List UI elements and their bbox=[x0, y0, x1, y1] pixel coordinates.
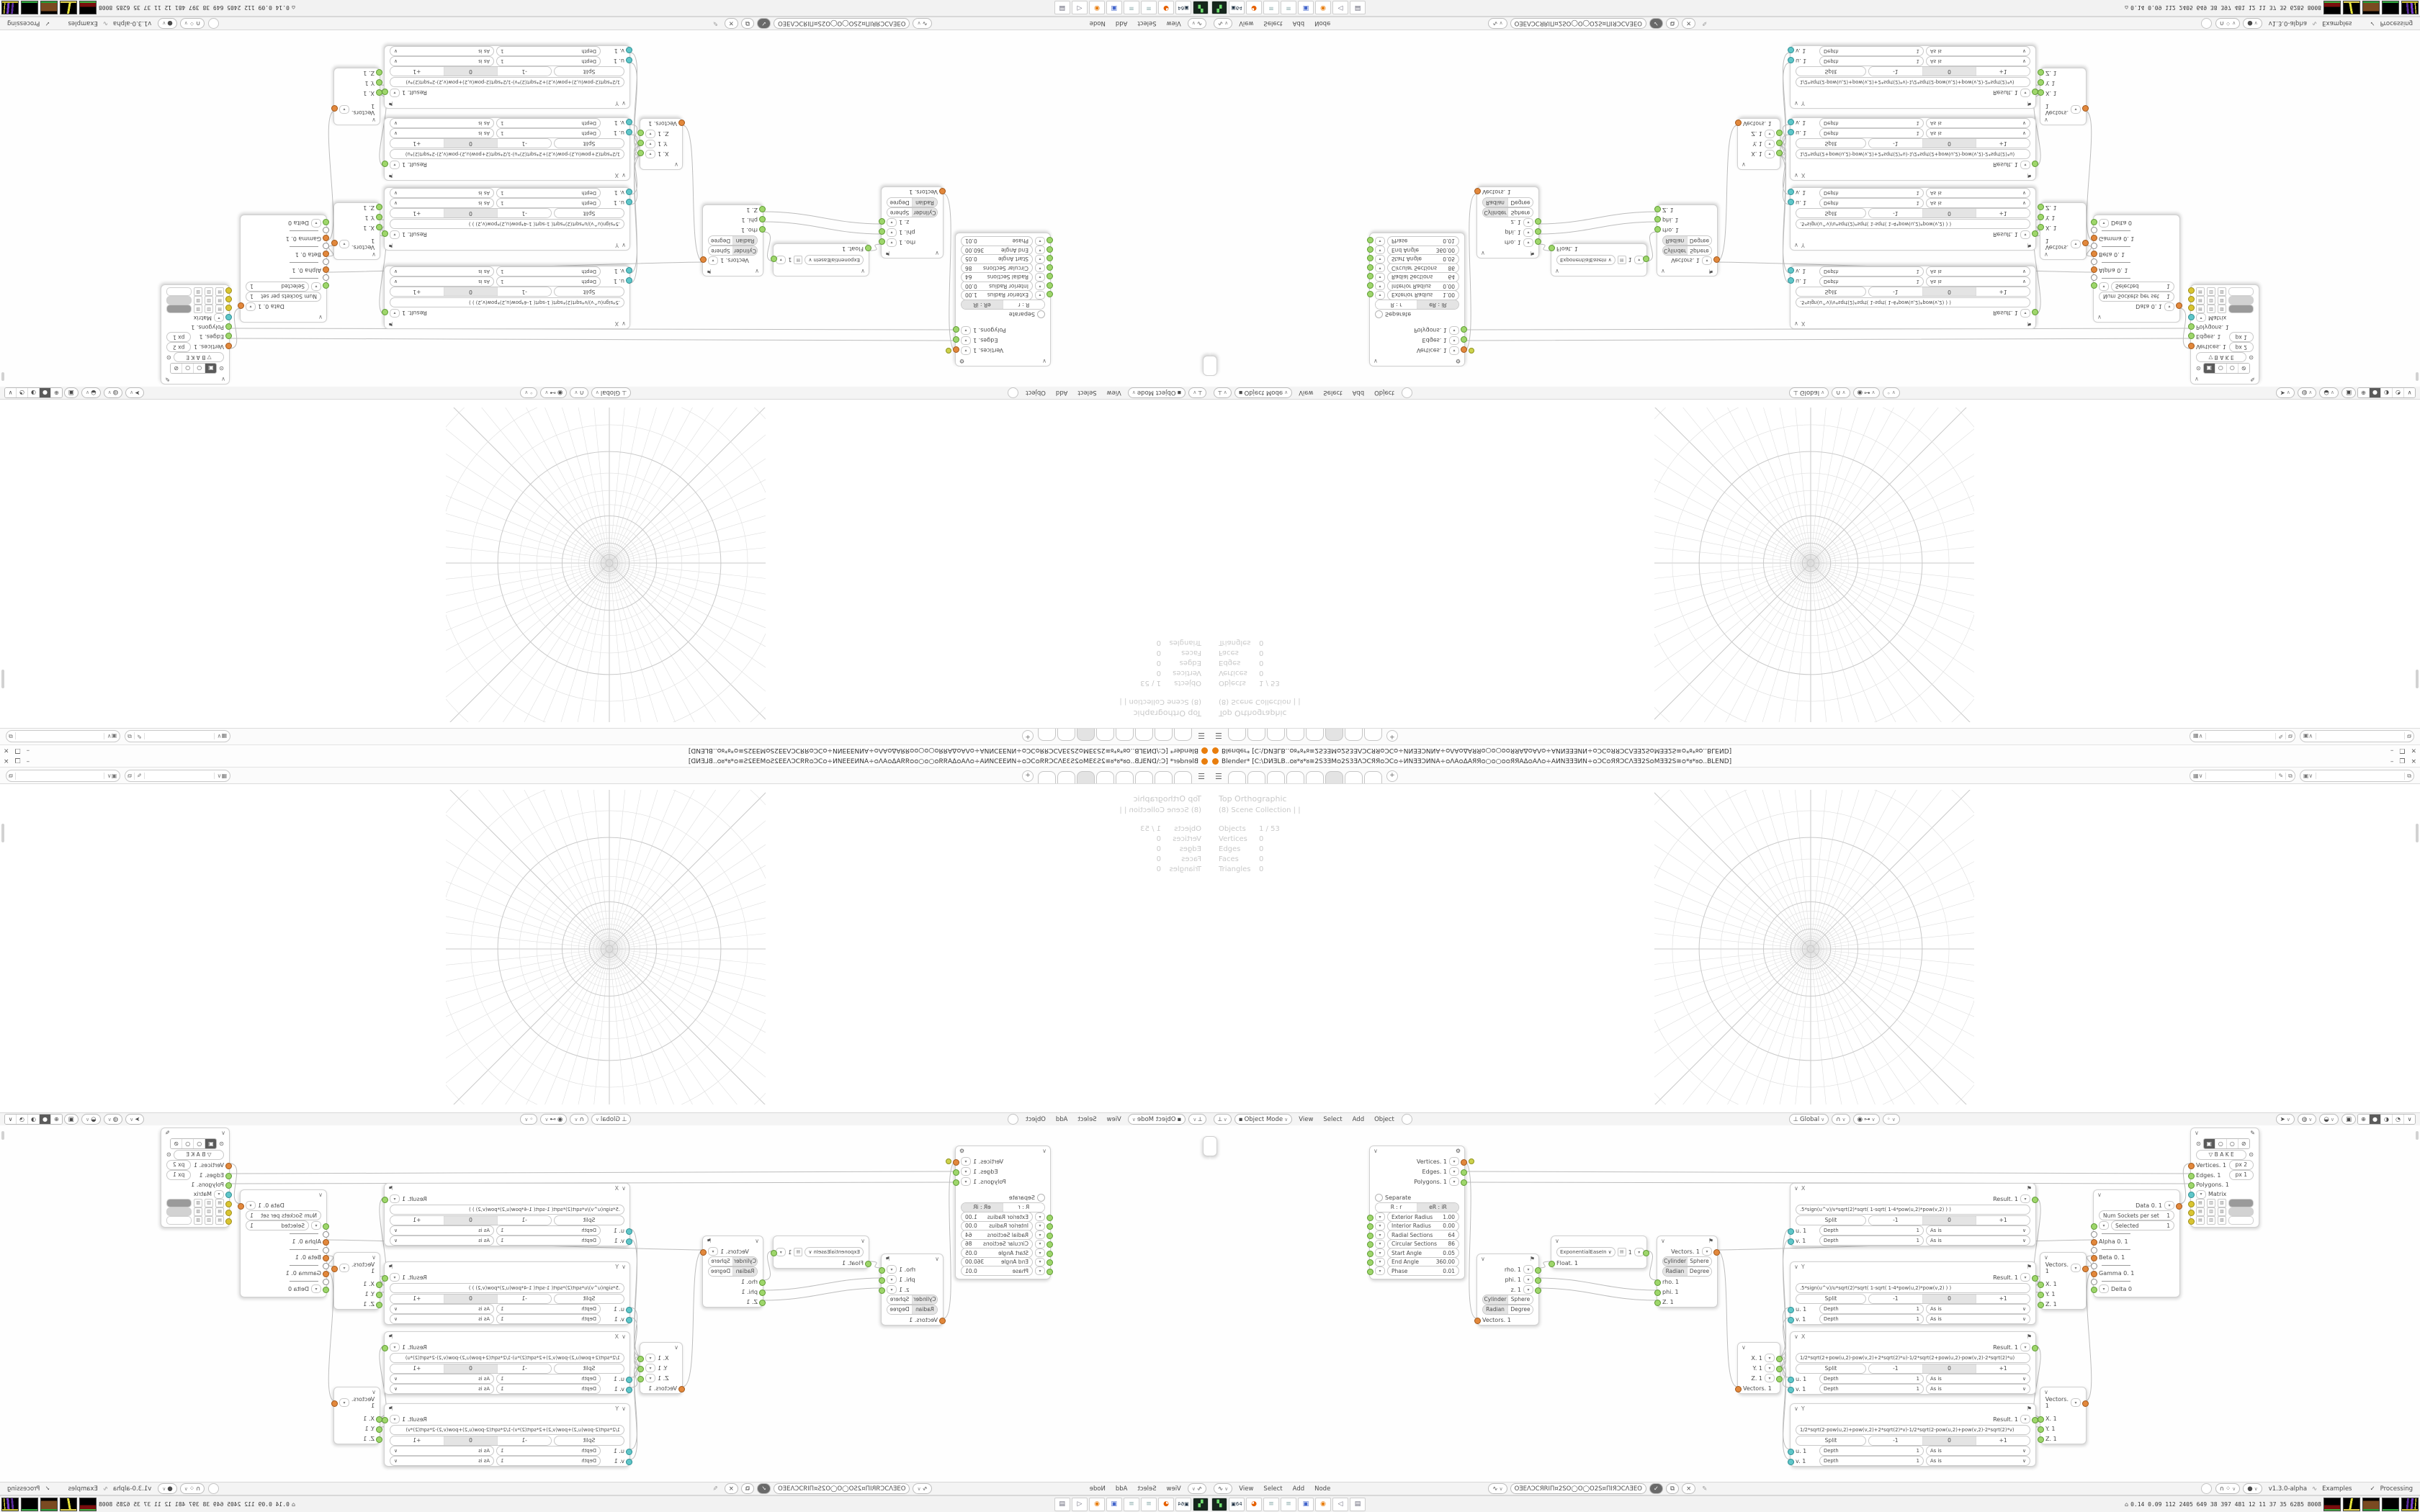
angle-mode-switch[interactable]: RadianDegree bbox=[887, 197, 938, 207]
workspace-tab[interactable] bbox=[1155, 771, 1173, 783]
menu-select[interactable]: Select bbox=[1137, 1485, 1156, 1493]
edge-width-field[interactable]: px 1 bbox=[2229, 332, 2254, 342]
tool-indicator[interactable] bbox=[208, 1483, 219, 1494]
menu-add[interactable]: Add bbox=[1293, 20, 1304, 27]
check-icon[interactable]: ✓ bbox=[2370, 20, 2375, 27]
workspace-tab-active[interactable] bbox=[1077, 771, 1095, 783]
pin-icon[interactable]: ✎ bbox=[2275, 773, 2285, 779]
app-icon-save64[interactable]: ▣64 bbox=[1229, 1498, 1245, 1511]
angle-mode-switch[interactable]: RadianDegree bbox=[887, 1305, 938, 1315]
wrap-switch[interactable]: -10+1 bbox=[1868, 209, 2030, 219]
edge-color-swatch[interactable] bbox=[166, 1207, 192, 1216]
overlays-toggle[interactable]: ◍∨ bbox=[2298, 1114, 2317, 1125]
node-formula-x2[interactable]: ∨X⚑ Result. 1▾ 1/2*sqrt(2+pow(u,2)-pow(v… bbox=[1790, 1331, 2036, 1395]
torus-mode-switch[interactable]: R : reR : iR bbox=[1375, 1202, 1459, 1212]
vertex-color-swatch[interactable] bbox=[2228, 305, 2254, 313]
node-easing[interactable]: ∨ ExponentialEaseIn∨ ▤ 1 ▾ Float. 1 bbox=[773, 243, 869, 276]
split-button[interactable]: Split bbox=[554, 1215, 624, 1225]
wrap-switch[interactable]: -10+1 bbox=[1868, 1436, 2030, 1446]
tree-name-field[interactable]: OƎEΛϽCЯRIΠ¤2SO◯O◯O2S¤ΠIЯϽCΛƎEO bbox=[774, 18, 910, 29]
app-icon-window[interactable]: ▤ bbox=[1054, 1498, 1070, 1511]
num-sockets-field[interactable]: Num Sockets per set1 bbox=[246, 1210, 321, 1220]
coord-mode-switch[interactable]: CylinderSphere bbox=[887, 207, 938, 217]
node-easing[interactable]: ∨ ExponentialEaseIn∨ ▤ 1 ▾ Float. 1 bbox=[1551, 243, 1647, 276]
app-icon-notes[interactable]: ▣ bbox=[1298, 1, 1314, 14]
xray-button[interactable]: ▣ bbox=[64, 387, 79, 398]
viewport-3d[interactable]: Top Orthographic (8) Scene Collection | … bbox=[0, 784, 1210, 1112]
app-icon-window[interactable]: ▤ bbox=[1054, 1, 1070, 14]
menu-icon[interactable]: ☰ bbox=[1198, 772, 1205, 781]
coord-mode-switch[interactable]: CylinderSphere bbox=[1482, 207, 1533, 217]
node-vector-in-b[interactable]: ∨ Vectors. 1▾ X. 1 Y. 1 Z. 1 bbox=[333, 1387, 380, 1444]
app-icon-window[interactable]: ▤ bbox=[1350, 1, 1366, 14]
viewport-scrollbar[interactable] bbox=[1, 824, 4, 842]
torus-mode-switch[interactable]: R : reR : iR bbox=[961, 300, 1045, 310]
bake-button[interactable]: ▽ B A K E bbox=[2196, 353, 2246, 363]
viewport-3d[interactable]: Top Orthographic (8) Scene Collection | … bbox=[1210, 784, 2420, 1112]
wrap-switch[interactable]: -10+1 bbox=[1868, 1364, 2030, 1374]
wrap-switch[interactable]: -10+1 bbox=[1868, 1215, 2030, 1225]
snap-toggle[interactable]: ∩∨ bbox=[1832, 387, 1850, 398]
tree-selector[interactable]: ∿∨ bbox=[1488, 18, 1507, 29]
workspace-tab[interactable] bbox=[1174, 771, 1192, 783]
editor-type-button[interactable]: ⟂∨ bbox=[1188, 1114, 1206, 1125]
pin-icon[interactable]: ✎ bbox=[135, 773, 145, 779]
selected-field[interactable]: Selected1 bbox=[2111, 282, 2174, 292]
copy-icon[interactable]: ⧉ bbox=[125, 773, 135, 780]
orientation-selector[interactable]: ⊥Global∨ bbox=[591, 387, 632, 398]
copy-icon[interactable]: ⧉ bbox=[6, 733, 16, 740]
formula-field[interactable]: .5*sign(u^v)/u*sqrt(2)*sqrt( 1-sqrt( 1-4… bbox=[1796, 1283, 2030, 1293]
node-formula-y1[interactable]: ∨Y⚑ Result. 1▾ .5*sign(u^v)/u*sqrt(2)*sq… bbox=[1790, 1261, 2036, 1325]
app-icon-notes[interactable]: ▣ bbox=[1106, 1, 1122, 14]
vertex-size-field[interactable]: px 2 bbox=[166, 342, 191, 352]
menu-add[interactable]: Add bbox=[1353, 1116, 1364, 1123]
app-icon-terminal[interactable]: ▚ bbox=[1211, 1, 1227, 14]
separate-checkbox[interactable] bbox=[1375, 311, 1383, 319]
workspace-tab[interactable] bbox=[1135, 729, 1153, 741]
face-color-swatch[interactable] bbox=[166, 1216, 192, 1225]
face-color-swatch[interactable] bbox=[2228, 287, 2254, 296]
mode-selector[interactable]: ▪Object Mode∨ bbox=[1234, 387, 1292, 398]
workspace-tab[interactable] bbox=[1364, 729, 1382, 741]
workspace-tab[interactable] bbox=[1038, 771, 1056, 783]
separate-checkbox[interactable] bbox=[1375, 1194, 1383, 1202]
check-icon[interactable]: ✓ bbox=[45, 20, 50, 27]
separate-checkbox[interactable] bbox=[1037, 311, 1045, 319]
menu-select[interactable]: Select bbox=[1077, 390, 1096, 397]
scene-name-field[interactable] bbox=[145, 730, 214, 742]
workspace-tab[interactable] bbox=[1306, 729, 1324, 741]
torus-field[interactable]: Exterior Radius1.00 bbox=[1387, 290, 1459, 300]
reroute-dot[interactable] bbox=[946, 348, 951, 354]
add-workspace-button[interactable]: + bbox=[1386, 730, 1398, 742]
restore-button[interactable]: ❐ bbox=[2399, 758, 2405, 765]
split-button[interactable]: Split bbox=[1796, 1364, 1866, 1374]
close-button[interactable]: × bbox=[2411, 747, 2416, 755]
unlink-button[interactable]: × bbox=[1682, 18, 1695, 29]
node-editor-scrollbar[interactable] bbox=[1, 1131, 4, 1140]
node-formula-y2[interactable]: ∨Y⚑ Result. 1▾ 1/2*sqrt(2-pow(u,2)+pow(v… bbox=[384, 45, 630, 109]
view-layer-field[interactable] bbox=[16, 730, 104, 742]
torus-field[interactable]: Radial Sections64 bbox=[1387, 272, 1459, 282]
node-torus[interactable]: ∨⚙ Vertices. 1▾ Edges. 1▾ Polygons. 1▾ S… bbox=[1369, 233, 1465, 367]
workspace-tab[interactable] bbox=[1286, 771, 1304, 783]
wrap-switch[interactable]: -10+1 bbox=[1868, 67, 2030, 77]
torus-mode-switch[interactable]: R : reR : iR bbox=[961, 1202, 1045, 1212]
angle-mode-switch[interactable]: RadianDegree bbox=[1482, 197, 1533, 207]
node-formula-x1[interactable]: ∨X⚑ Result. 1▾ .5*sign(u^v)/v*sqrt(2)*sq… bbox=[1790, 266, 2036, 329]
wrap-switch[interactable]: -10+1 bbox=[1868, 1294, 2030, 1304]
split-button[interactable]: Split bbox=[554, 1436, 624, 1446]
copy-icon[interactable]: ⧉ bbox=[2285, 773, 2295, 780]
edge-width-field[interactable]: px 1 bbox=[166, 332, 191, 342]
wrap-switch[interactable]: -10+1 bbox=[390, 287, 552, 297]
workspace-tab[interactable] bbox=[1306, 771, 1324, 783]
check-icon[interactable]: ✓ bbox=[45, 1485, 50, 1493]
workspace-tab-active[interactable] bbox=[1325, 729, 1343, 741]
vertex-size-field[interactable]: px 2 bbox=[2229, 342, 2254, 352]
workspace-tab[interactable] bbox=[1345, 729, 1363, 741]
tree-name-field[interactable]: OƎEΛϽCЯRIΠ¤2SO◯O◯O2S¤ΠIЯϽCΛƎEO bbox=[1510, 1483, 1646, 1494]
scene-name-field[interactable] bbox=[2206, 770, 2275, 782]
bake-button[interactable]: ▽ B A K E bbox=[174, 353, 224, 363]
minimize-button[interactable]: – bbox=[2390, 758, 2394, 765]
coord-mode-switch[interactable]: CylinderSphere bbox=[1662, 246, 1712, 256]
falloff-selector[interactable]: ◦∨ bbox=[1883, 387, 1900, 398]
restore-button[interactable]: ❐ bbox=[15, 747, 21, 755]
copy-icon[interactable]: ⧉ bbox=[2404, 733, 2414, 740]
node-vector-polar-out[interactable]: ∨⚑ rho. 1▾ phi. 1▾ z. 1▾ CylinderSphere … bbox=[881, 1254, 944, 1326]
display-mode-switch[interactable]: ▣○○⊘ bbox=[2203, 1138, 2250, 1149]
node-vector-polar-in[interactable]: ∨⚑ Vectors. 1▾ CylinderSphere RadianDegr… bbox=[702, 1236, 763, 1308]
node-editor[interactable]: ∨⚙ Vertices. 1▾ Edges. 1▾ Polygons. 1▾ S… bbox=[0, 1125, 1210, 1482]
menu-select[interactable]: Select bbox=[1263, 1485, 1282, 1493]
proportional-edit-toggle[interactable]: ◉⊶∨ bbox=[540, 1114, 567, 1125]
menu-select[interactable]: Select bbox=[1323, 1116, 1342, 1123]
split-button[interactable]: Split bbox=[1796, 1215, 1866, 1225]
split-button[interactable]: Split bbox=[554, 67, 624, 77]
xray-button[interactable]: ▣ bbox=[2341, 387, 2356, 398]
bake-button[interactable]: ▽ B A K E bbox=[2196, 1150, 2246, 1160]
split-button[interactable]: Split bbox=[554, 1364, 624, 1374]
view-layer-field[interactable] bbox=[16, 770, 104, 782]
viewport-scrollbar[interactable] bbox=[2416, 670, 2419, 688]
menu-select[interactable]: Select bbox=[1323, 390, 1342, 397]
reroute-dot[interactable] bbox=[946, 1158, 951, 1164]
menu-add[interactable]: Add bbox=[1293, 1485, 1304, 1493]
menu-object[interactable]: Object bbox=[1026, 1116, 1046, 1123]
app-icon-notepad[interactable]: ≡ bbox=[1263, 1, 1279, 14]
mode-selector[interactable]: ▪Object Mode∨ bbox=[1128, 1114, 1186, 1125]
easing-mode-dropdown[interactable]: ExponentialEaseIn∨ bbox=[1556, 255, 1615, 265]
shading-mode-switch[interactable]: ⊕ ● ◑ ◔ ∨ bbox=[2357, 1114, 2416, 1125]
pin-icon[interactable]: ✎ bbox=[1702, 1485, 1707, 1493]
app-icon-notes[interactable]: ▣ bbox=[1298, 1498, 1314, 1511]
falloff-selector[interactable]: ◦∨ bbox=[520, 1114, 537, 1125]
formula-field[interactable]: 1/2*sqrt(2+pow(u,2)-pow(v,2)+2*sqrt(2)*u… bbox=[1796, 1353, 2030, 1363]
snap-toggle[interactable]: ∩⁘∨ bbox=[2215, 1483, 2240, 1494]
workspace-tab[interactable] bbox=[1364, 771, 1382, 783]
tray-graph-cpu[interactable] bbox=[2323, 1498, 2341, 1511]
node-torus[interactable]: ∨⚙ Vertices. 1▾ Edges. 1▾ Polygons. 1▾ S… bbox=[955, 233, 1051, 367]
xray-toggle[interactable]: ◒∨ bbox=[2319, 387, 2339, 398]
menu-view[interactable]: View bbox=[1167, 1485, 1181, 1493]
menu-node[interactable]: Node bbox=[1090, 1485, 1106, 1493]
node-formula-x2[interactable]: ∨X⚑ Result. 1▾ 1/2*sqrt(2+pow(u,2)-pow(v… bbox=[1790, 117, 2036, 181]
edge-color-swatch[interactable] bbox=[2228, 1207, 2254, 1216]
torus-field[interactable]: Circular Sections86 bbox=[1387, 263, 1459, 273]
torus-field[interactable]: Start Angle0.05 bbox=[1387, 254, 1459, 264]
workspace-tab[interactable] bbox=[1096, 729, 1114, 741]
node-editor[interactable]: ∨⚙ Vertices. 1▾ Edges. 1▾ Polygons. 1▾ S… bbox=[1210, 1125, 2420, 1482]
face-color-swatch[interactable] bbox=[2228, 1216, 2254, 1225]
node-vector-out-xyz[interactable]: ∨ X. 1▾ Y. 1▾ Z. 1▾ Vectors. 1 bbox=[640, 118, 683, 170]
angle-mode-switch[interactable]: RadianDegree bbox=[1482, 1305, 1533, 1315]
node-viewer-draw[interactable]: ∨✎ ⊙ ▣○○⊘ ▽ B A K E ⊙ Vertices. 1px 2 Ed… bbox=[161, 284, 230, 384]
node-editor[interactable]: ∨⚙ Vertices. 1▾ Edges. 1▾ Polygons. 1▾ S… bbox=[1210, 30, 2420, 387]
orientation-selector[interactable]: ⊥Global∨ bbox=[1789, 1114, 1829, 1125]
clipped-node[interactable] bbox=[1203, 1136, 1210, 1156]
angle-mode-switch[interactable]: RadianDegree bbox=[1662, 235, 1712, 246]
node-list-input[interactable]: ∨ Data 0. 1▾ Num Sockets per set1 ▾Selec… bbox=[2093, 1189, 2180, 1297]
unlink-button[interactable]: × bbox=[725, 1483, 738, 1494]
xray-button[interactable]: ▣ bbox=[64, 1114, 79, 1125]
node-formula-x2[interactable]: ∨X⚑ Result. 1▾ 1/2*sqrt(2+pow(u,2)-pow(v… bbox=[384, 1331, 630, 1395]
app-icon-blender[interactable]: ◉ bbox=[1089, 1, 1105, 14]
num-sockets-field[interactable]: Num Sockets per set1 bbox=[246, 292, 321, 302]
minimize-button[interactable]: – bbox=[2390, 747, 2394, 755]
overlay-toggle[interactable]: ●∨ bbox=[158, 18, 177, 29]
node-vector-out-xyz[interactable]: ∨ X. 1▾ Y. 1▾ Z. 1▾ Vectors. 1 bbox=[1737, 118, 1780, 170]
minimize-button[interactable]: – bbox=[27, 758, 30, 765]
node-vector-out-xyz[interactable]: ∨ X. 1▾ Y. 1▾ Z. 1▾ Vectors. 1 bbox=[1737, 1342, 1780, 1394]
torus-field[interactable]: Circular Sections86 bbox=[961, 263, 1033, 273]
tray-graph-gpu[interactable] bbox=[1, 1498, 19, 1511]
xray-button[interactable]: ▣ bbox=[2341, 1114, 2356, 1125]
wrap-switch[interactable]: -10+1 bbox=[390, 67, 552, 77]
scene-name-field[interactable] bbox=[145, 770, 214, 782]
torus-field[interactable]: End Angle360.00 bbox=[1387, 245, 1459, 255]
tray-graph-gpu[interactable] bbox=[2401, 1, 2419, 14]
node-vector-polar-out[interactable]: ∨⚑ rho. 1▾ phi. 1▾ z. 1▾ CylinderSphere … bbox=[1476, 186, 1539, 258]
add-workspace-button[interactable]: + bbox=[1022, 770, 1034, 782]
overlay-toggle[interactable]: ●∨ bbox=[158, 1483, 177, 1494]
edge-color-swatch[interactable] bbox=[166, 296, 192, 305]
copy-button[interactable]: ⧉ bbox=[741, 1483, 754, 1494]
menu-select[interactable]: Select bbox=[1263, 20, 1282, 27]
node-vector-in-a[interactable]: ∨ Vectors. 1▾ X. 1 Y. 1 Z. 1 bbox=[333, 1252, 380, 1310]
tray-graph-net[interactable] bbox=[21, 1, 38, 14]
workspace-tab-active[interactable] bbox=[1077, 729, 1095, 741]
editor-type-button[interactable]: ∿∨ bbox=[1214, 1483, 1232, 1494]
node-torus[interactable]: ∨⚙ Vertices. 1▾ Edges. 1▾ Polygons. 1▾ S… bbox=[955, 1146, 1051, 1279]
reroute-dot[interactable] bbox=[1469, 348, 1474, 354]
app-icon-notepad[interactable]: ≡ bbox=[1124, 1498, 1139, 1511]
vertex-size-field[interactable]: px 2 bbox=[2229, 1160, 2254, 1170]
node-editor-scrollbar[interactable] bbox=[2416, 372, 2419, 381]
torus-field[interactable]: Radial Sections64 bbox=[961, 272, 1033, 282]
workspace-tab[interactable] bbox=[1057, 771, 1075, 783]
app-icon-blender[interactable]: ◉ bbox=[1315, 1498, 1331, 1511]
workspace-tab[interactable] bbox=[1174, 729, 1192, 741]
tray-graph-mem[interactable] bbox=[2343, 1, 2360, 14]
tray-graph-disk[interactable] bbox=[40, 1498, 58, 1511]
angle-mode-switch[interactable]: RadianDegree bbox=[708, 1266, 758, 1277]
tool-indicator[interactable] bbox=[1008, 1114, 1018, 1125]
scene-name-field[interactable] bbox=[2206, 730, 2275, 742]
num-sockets-field[interactable]: Num Sockets per set1 bbox=[2099, 292, 2174, 302]
fake-user-shield-button[interactable]: ✓ bbox=[757, 18, 771, 29]
mode-selector[interactable]: ▪Object Mode∨ bbox=[1128, 387, 1186, 398]
workspace-tab[interactable] bbox=[1116, 729, 1134, 741]
easing-mode-dropdown[interactable]: ExponentialEaseIn∨ bbox=[805, 255, 864, 265]
node-vector-polar-out[interactable]: ∨⚑ rho. 1▾ phi. 1▾ z. 1▾ CylinderSphere … bbox=[1476, 1254, 1539, 1326]
menu-node[interactable]: Node bbox=[1314, 1485, 1330, 1493]
pin-icon[interactable]: ✎ bbox=[713, 1485, 718, 1493]
editor-type-button[interactable]: ⟂∨ bbox=[1214, 387, 1232, 398]
node-formula-y1[interactable]: ∨Y⚑ Result. 1▾ .5*sign(u^v)/u*sqrt(2)*sq… bbox=[384, 1261, 630, 1325]
viewport-scrollbar[interactable] bbox=[2416, 824, 2419, 842]
node-list-input[interactable]: ∨ Data 0. 1▾ Num Sockets per set1 ▾Selec… bbox=[240, 215, 327, 323]
node-formula-x1[interactable]: ∨X⚑ Result. 1▾ .5*sign(u^v)/v*sqrt(2)*sq… bbox=[1790, 1183, 2036, 1246]
falloff-selector[interactable]: ◦∨ bbox=[520, 387, 537, 398]
fake-user-shield-button[interactable]: ✓ bbox=[1649, 18, 1663, 29]
torus-field[interactable]: Phase0.01 bbox=[961, 236, 1033, 246]
coord-mode-switch[interactable]: CylinderSphere bbox=[1482, 1295, 1533, 1305]
app-icon-terminal[interactable]: ▚ bbox=[1193, 1498, 1209, 1511]
overlay-toggle[interactable]: ●∨ bbox=[2243, 18, 2262, 29]
num-sockets-field[interactable]: Num Sockets per set1 bbox=[2099, 1210, 2174, 1220]
workspace-tab[interactable] bbox=[1345, 771, 1363, 783]
coord-mode-switch[interactable]: CylinderSphere bbox=[1662, 1256, 1712, 1266]
tray-graph-mem[interactable] bbox=[60, 1, 77, 14]
formula-field[interactable]: .5*sign(u^v)/v*sqrt(2)*sqrt( 1-sqrt( 1-4… bbox=[390, 1205, 624, 1215]
xray-toggle[interactable]: ◒∨ bbox=[2319, 1114, 2339, 1125]
orientation-selector[interactable]: ⊥Global∨ bbox=[1789, 387, 1829, 398]
workspace-tab-active[interactable] bbox=[1325, 771, 1343, 783]
view-layer-field[interactable] bbox=[2316, 770, 2404, 782]
shading-mode-switch[interactable]: ⊕ ● ◑ ◔ ∨ bbox=[2357, 387, 2416, 398]
separate-checkbox[interactable] bbox=[1037, 1194, 1045, 1202]
node-formula-y2[interactable]: ∨Y⚑ Result. 1▾ 1/2*sqrt(2-pow(u,2)+pow(v… bbox=[1790, 1403, 2036, 1467]
split-button[interactable]: Split bbox=[1796, 1436, 1866, 1446]
tree-name-field[interactable]: OƎEΛϽCЯRIΠ¤2SO◯O◯O2S¤ΠIЯϽCΛƎEO bbox=[774, 1483, 910, 1494]
app-icon-save64[interactable]: ▣64 bbox=[1175, 1, 1191, 14]
node-formula-x1[interactable]: ∨X⚑ Result. 1▾ .5*sign(u^v)/v*sqrt(2)*sq… bbox=[384, 266, 630, 329]
coord-mode-switch[interactable]: CylinderSphere bbox=[708, 1256, 758, 1266]
fake-user-shield-button[interactable]: ✓ bbox=[757, 1483, 771, 1494]
tree-name-field[interactable]: OƎEΛϽCЯRIΠ¤2SO◯O◯O2S¤ΠIЯϽCΛƎEO bbox=[1510, 18, 1646, 29]
proportional-edit-toggle[interactable]: ◉⊶∨ bbox=[1853, 387, 1880, 398]
proportional-edit-toggle[interactable]: ◉⊶∨ bbox=[540, 387, 567, 398]
split-button[interactable]: Split bbox=[554, 209, 624, 219]
tray-graph-disk[interactable] bbox=[40, 1, 58, 14]
editor-type-button[interactable]: ⟂∨ bbox=[1188, 387, 1206, 398]
app-icon-firefox[interactable]: ◕ bbox=[1246, 1498, 1262, 1511]
view-layer-selector[interactable]: ▣∨ ⧉ bbox=[2300, 730, 2414, 742]
wrap-switch[interactable]: -10+1 bbox=[390, 1294, 552, 1304]
app-icon-blender[interactable]: ◉ bbox=[1315, 1, 1331, 14]
tray-graph-net[interactable] bbox=[2382, 1498, 2399, 1511]
tool-indicator[interactable] bbox=[1008, 387, 1018, 398]
app-icon-terminal[interactable]: ▚ bbox=[1211, 1498, 1227, 1511]
face-color-swatch[interactable] bbox=[166, 287, 192, 296]
processing-toggle[interactable]: Processing bbox=[2380, 1485, 2413, 1493]
workspace-tab[interactable] bbox=[1228, 729, 1246, 741]
tray-graph-disk[interactable] bbox=[2362, 1498, 2380, 1511]
selected-field[interactable]: Selected1 bbox=[246, 282, 309, 292]
node-vector-in-b[interactable]: ∨ Vectors. 1▾ X. 1 Y. 1 Z. 1 bbox=[2040, 68, 2087, 125]
split-button[interactable]: Split bbox=[554, 287, 624, 297]
tray-graph-gpu[interactable] bbox=[2401, 1498, 2419, 1511]
torus-field[interactable]: Start Angle0.05 bbox=[961, 254, 1033, 264]
edge-width-field[interactable]: px 1 bbox=[2229, 1170, 2254, 1180]
app-icon-firefox[interactable]: ◕ bbox=[1246, 1, 1262, 14]
minimize-button[interactable]: – bbox=[27, 747, 30, 755]
app-icon-notepad[interactable]: ≡ bbox=[1124, 1, 1139, 14]
torus-mode-switch[interactable]: R : reR : iR bbox=[1375, 300, 1459, 310]
clipped-node[interactable] bbox=[1210, 1136, 1217, 1156]
node-formula-x1[interactable]: ∨X⚑ Result. 1▾ .5*sign(u^v)/v*sqrt(2)*sq… bbox=[384, 1183, 630, 1246]
overlays-toggle[interactable]: ◍∨ bbox=[2298, 387, 2317, 398]
menu-icon[interactable]: ☰ bbox=[1215, 772, 1222, 781]
view-layer-selector[interactable]: ▣∨ ⧉ bbox=[6, 730, 120, 742]
menu-add[interactable]: Add bbox=[1056, 390, 1067, 397]
formula-field[interactable]: .5*sign(u^v)/v*sqrt(2)*sqrt( 1-sqrt( 1-4… bbox=[1796, 1205, 2030, 1215]
close-button[interactable]: × bbox=[2411, 758, 2416, 765]
check-icon[interactable]: ✓ bbox=[2370, 1485, 2375, 1493]
gizmo-toggle[interactable]: ➤∨ bbox=[2276, 387, 2295, 398]
copy-button[interactable]: ⧉ bbox=[1666, 1483, 1679, 1494]
split-button[interactable]: Split bbox=[554, 1294, 624, 1304]
app-icon-speaker[interactable]: ◁ bbox=[1332, 1498, 1348, 1511]
node-vector-polar-in[interactable]: ∨⚑ Vectors. 1▾ CylinderSphere RadianDegr… bbox=[1657, 204, 1718, 276]
unlink-button[interactable]: × bbox=[725, 18, 738, 29]
vertex-color-swatch[interactable] bbox=[2228, 1199, 2254, 1207]
formula-field[interactable]: 1/2*sqrt(2-pow(u,2)+pow(v,2)+2*sqrt(2)*v… bbox=[1796, 78, 2030, 88]
orientation-selector[interactable]: ⊥Global∨ bbox=[591, 1114, 632, 1125]
selected-field[interactable]: Selected1 bbox=[2111, 1220, 2174, 1230]
snap-toggle[interactable]: ∩∨ bbox=[570, 1114, 588, 1125]
node-formula-y1[interactable]: ∨Y⚑ Result. 1▾ .5*sign(u^v)/u*sqrt(2)*sq… bbox=[1790, 187, 2036, 251]
add-workspace-button[interactable]: + bbox=[1022, 730, 1034, 742]
copy-button[interactable]: ⧉ bbox=[1666, 18, 1679, 29]
node-formula-y1[interactable]: ∨Y⚑ Result. 1▾ .5*sign(u^v)/u*sqrt(2)*sq… bbox=[384, 187, 630, 251]
app-icon-firefox[interactable]: ◕ bbox=[1158, 1, 1174, 14]
app-icon-save64[interactable]: ▣64 bbox=[1175, 1498, 1191, 1511]
menu-add[interactable]: Add bbox=[1353, 390, 1364, 397]
split-button[interactable]: Split bbox=[1796, 209, 1866, 219]
torus-field[interactable]: Phase0.01 bbox=[1387, 1266, 1459, 1276]
scene-selector[interactable]: ▦∨ ✎ ⧉ bbox=[2190, 730, 2295, 742]
workspace-tab[interactable] bbox=[1135, 771, 1153, 783]
processing-toggle[interactable]: Processing bbox=[7, 20, 40, 27]
app-icon-firefox[interactable]: ◕ bbox=[1158, 1498, 1174, 1511]
snap-toggle[interactable]: ∩⁘∨ bbox=[180, 18, 205, 29]
workspace-tab[interactable] bbox=[1155, 729, 1173, 741]
xray-toggle[interactable]: ◒∨ bbox=[81, 387, 101, 398]
xray-toggle[interactable]: ◒∨ bbox=[81, 1114, 101, 1125]
node-vector-polar-in[interactable]: ∨⚑ Vectors. 1▾ CylinderSphere RadianDegr… bbox=[1657, 1236, 1718, 1308]
workspace-tab[interactable] bbox=[1096, 771, 1114, 783]
examples-menu[interactable]: Examples bbox=[68, 1485, 98, 1493]
overlay-toggle[interactable]: ●∨ bbox=[2243, 1483, 2262, 1494]
tray-graph-mem[interactable] bbox=[2343, 1498, 2360, 1511]
torus-field[interactable]: Exterior Radius1.00 bbox=[961, 290, 1033, 300]
split-button[interactable]: Split bbox=[1796, 287, 1866, 297]
tree-selector[interactable]: ∿∨ bbox=[913, 1483, 931, 1494]
